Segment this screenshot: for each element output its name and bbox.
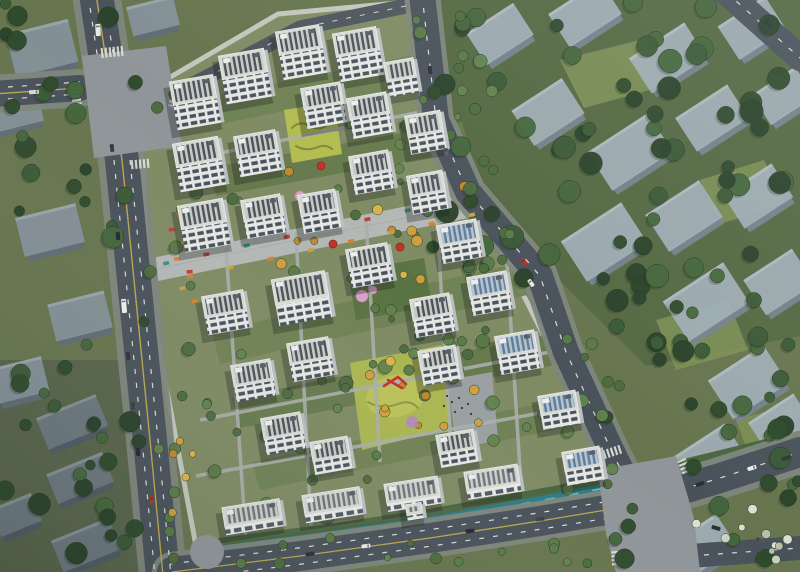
light-haze-overlay — [0, 0, 800, 572]
aerial-masterplan-svg — [0, 0, 800, 572]
aerial-masterplan-render — [0, 0, 800, 572]
